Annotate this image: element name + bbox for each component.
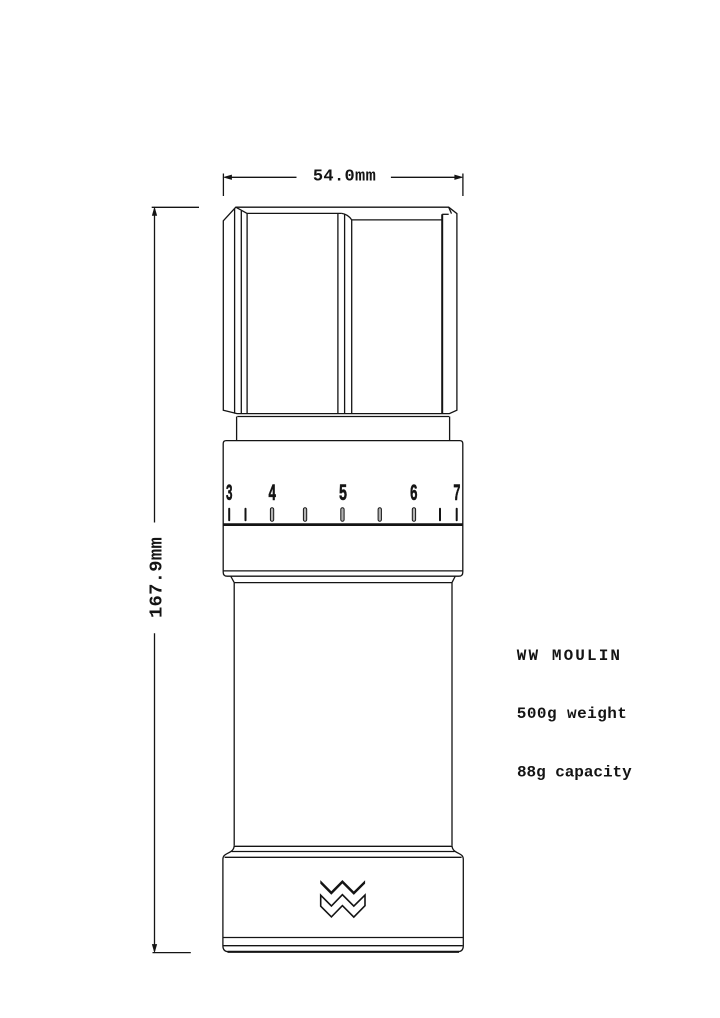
svg-text:5: 5: [339, 481, 348, 507]
svg-text:88g capacity: 88g capacity: [517, 764, 632, 782]
svg-text:500g weight: 500g weight: [517, 705, 628, 723]
svg-text:3: 3: [226, 482, 233, 507]
svg-text:6: 6: [410, 480, 418, 507]
svg-text:7: 7: [453, 481, 461, 507]
svg-text:167.9mm: 167.9mm: [146, 537, 168, 618]
svg-text:WW MOULIN: WW MOULIN: [517, 647, 622, 665]
svg-text:4: 4: [268, 480, 276, 507]
svg-text:54.0mm: 54.0mm: [313, 168, 376, 187]
